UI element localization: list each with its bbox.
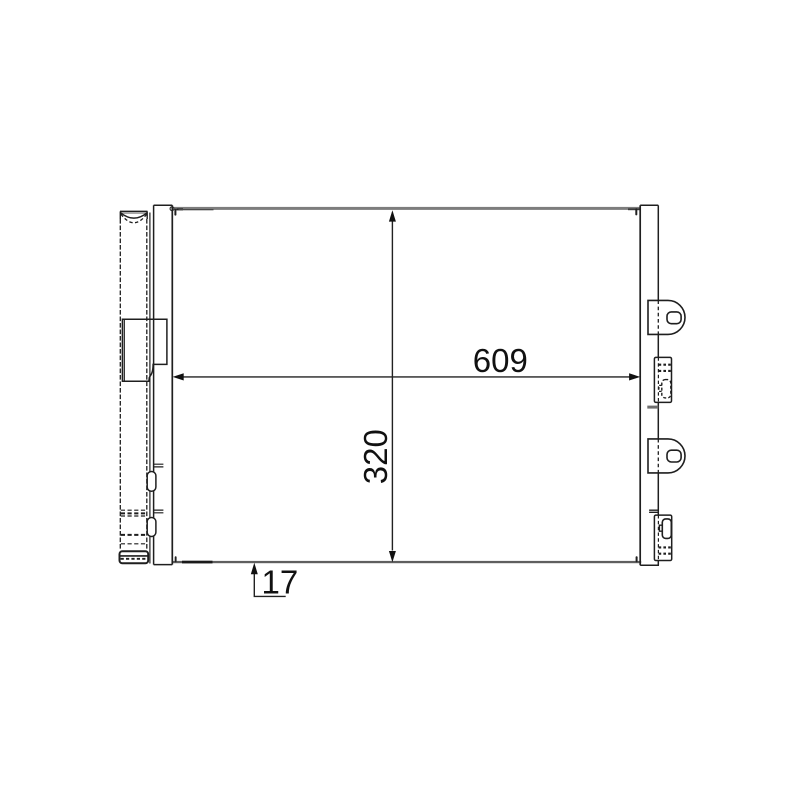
svg-text:320: 320 <box>357 429 394 484</box>
svg-text:609: 609 <box>473 342 528 379</box>
svg-text:17: 17 <box>262 564 299 601</box>
